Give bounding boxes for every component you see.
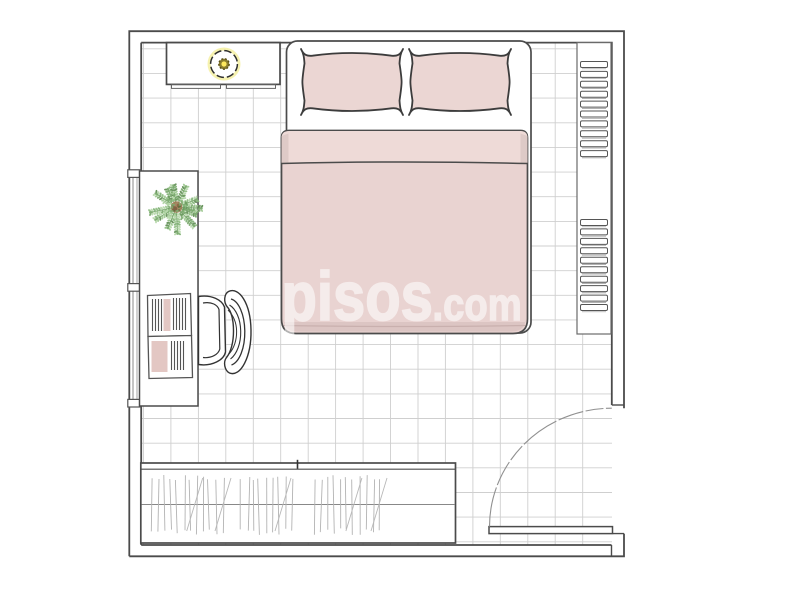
svg-text:.com: .com (433, 279, 522, 330)
svg-text:pisos: pisos (282, 257, 433, 335)
